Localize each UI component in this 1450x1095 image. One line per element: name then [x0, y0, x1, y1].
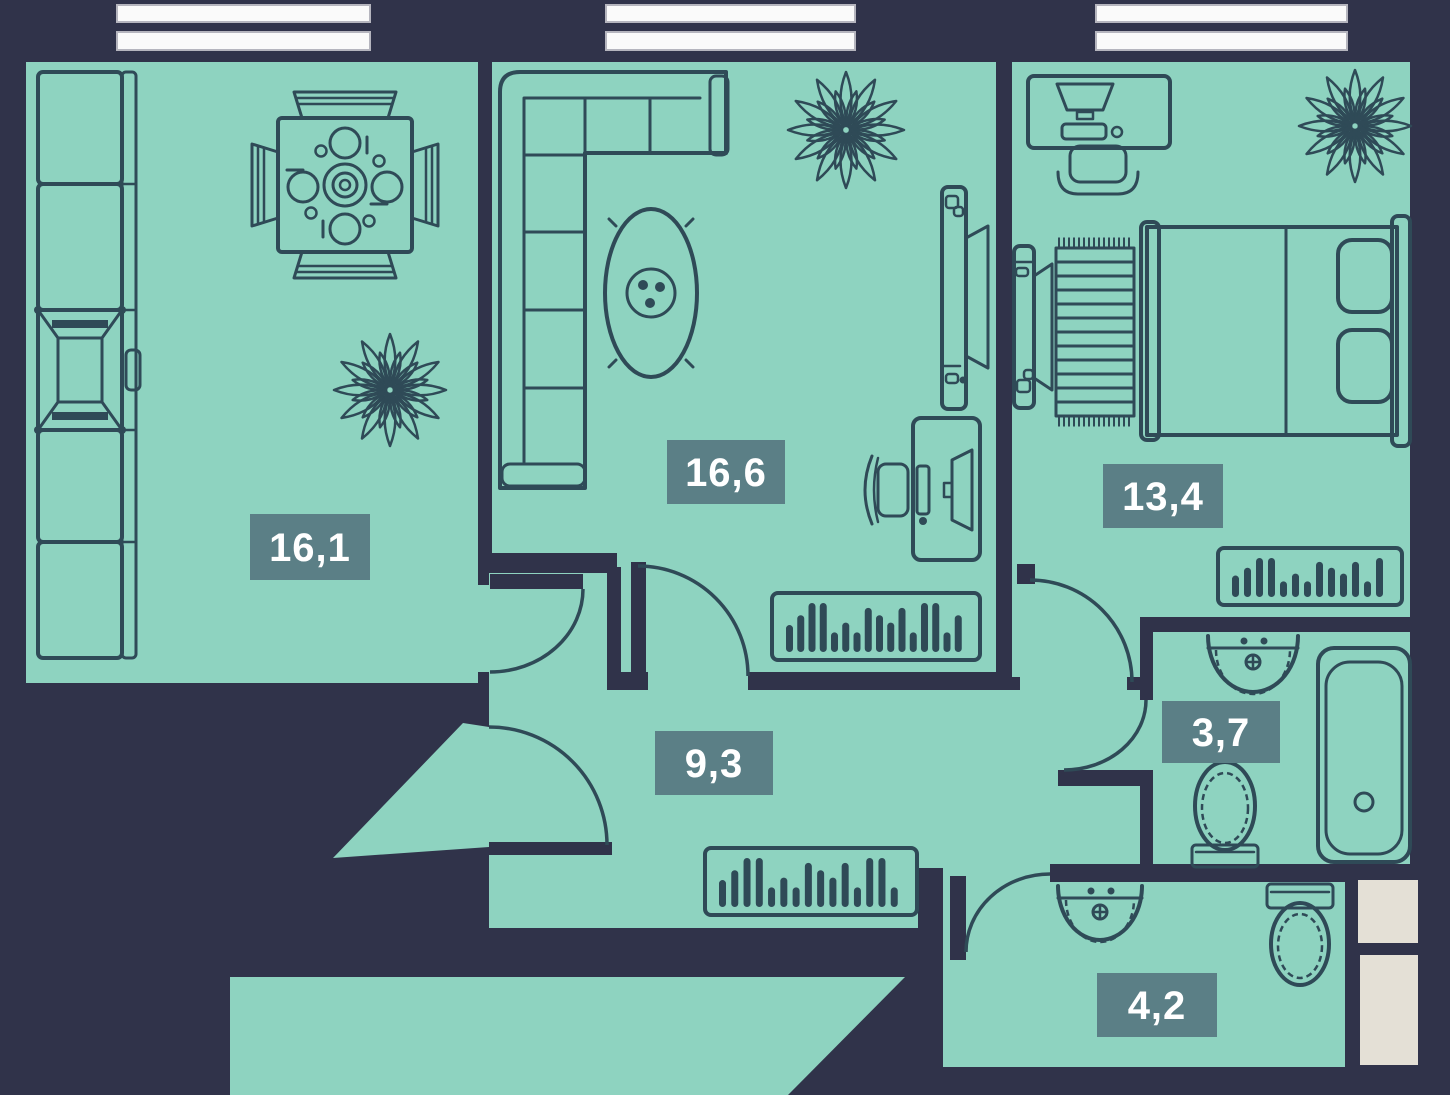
shelf-bar	[719, 880, 726, 907]
window-icon	[606, 5, 855, 50]
shelf-bar	[786, 625, 793, 652]
shelf-bar	[944, 632, 951, 652]
area-badge-bedroom: 13,4	[1103, 464, 1223, 528]
area-badge-bathroom: 3,7	[1162, 701, 1280, 763]
shelf-bar	[910, 632, 917, 652]
shelf-bar	[744, 858, 751, 907]
shelf-bar	[1340, 574, 1347, 597]
floor-plan: 16,1 16,6 13,4 9,3 3,7 4,2	[0, 0, 1450, 1095]
shelf-bar	[756, 858, 763, 907]
kitchen-door-opening	[478, 585, 492, 672]
living-door-leaf-icon	[631, 562, 646, 676]
area-label: 3,7	[1192, 711, 1251, 755]
shelf-bar	[1292, 574, 1299, 597]
shelf-bar	[805, 863, 812, 907]
shelf-bar	[831, 632, 838, 652]
shelf-bar	[842, 863, 849, 907]
shelf-bar	[809, 603, 816, 652]
shelf-bar	[878, 858, 885, 907]
shelf-bar	[1328, 568, 1335, 597]
shelf-bar	[891, 887, 898, 907]
shelf-bar	[829, 878, 836, 907]
area-badge-hallway: 9,3	[655, 731, 773, 795]
shelf-bar	[797, 615, 804, 652]
shelf-bar	[876, 615, 883, 652]
floor-plan-svg: 16,1 16,6 13,4 9,3 3,7 4,2	[0, 0, 1450, 1095]
bathroom-door-leaf-icon	[1058, 770, 1150, 786]
shelf-bar	[854, 887, 861, 907]
shelf-bar	[1232, 576, 1239, 597]
window-icon	[1096, 5, 1347, 50]
shelf-bar	[1304, 581, 1311, 597]
shelf-bar	[865, 608, 872, 652]
shelf-bar	[1316, 562, 1323, 597]
area-label: 9,3	[685, 742, 744, 786]
vent-shafts	[1358, 880, 1418, 1065]
area-label: 16,1	[269, 526, 351, 570]
shelf-bar	[1244, 568, 1251, 597]
shelf-bar	[866, 858, 873, 907]
shelf-bar	[768, 887, 775, 907]
shelf-bar	[887, 623, 894, 652]
shelf-bar	[731, 870, 738, 907]
shelf-bar	[1268, 558, 1275, 597]
shelf-bar	[793, 887, 800, 907]
toilet-door-leaf-icon	[950, 876, 966, 960]
shelf-bar	[842, 623, 849, 652]
shelf-bar	[1364, 581, 1371, 597]
shelf-bar	[820, 603, 827, 652]
shelf-bar	[1376, 558, 1383, 597]
vent-shaft-icon	[1358, 880, 1418, 943]
shelf-bar	[899, 608, 906, 652]
kitchen-door-leaf-icon	[490, 574, 583, 589]
shelf-bar	[854, 632, 861, 652]
shelf-bar	[1280, 581, 1287, 597]
shelf-bar	[1352, 562, 1359, 597]
area-badge-toilet: 4,2	[1097, 973, 1217, 1037]
window-icon	[117, 5, 370, 50]
entrance-door-leaf	[333, 723, 489, 858]
shelf-bar	[817, 870, 824, 907]
shelf-bar	[1256, 558, 1263, 597]
area-badge-living: 16,6	[667, 440, 785, 504]
shelf-bar	[921, 603, 928, 652]
shelf-bar	[932, 603, 939, 652]
room-floors	[26, 62, 1410, 1095]
shelf-bar	[955, 615, 962, 652]
terrace-area	[230, 977, 905, 1095]
shelf-bar	[780, 878, 787, 907]
area-label: 4,2	[1128, 984, 1187, 1028]
area-label: 16,6	[685, 451, 767, 495]
area-badge-kitchen: 16,1	[250, 514, 370, 580]
area-label: 13,4	[1122, 475, 1204, 519]
vent-shaft-icon	[1360, 955, 1418, 1065]
